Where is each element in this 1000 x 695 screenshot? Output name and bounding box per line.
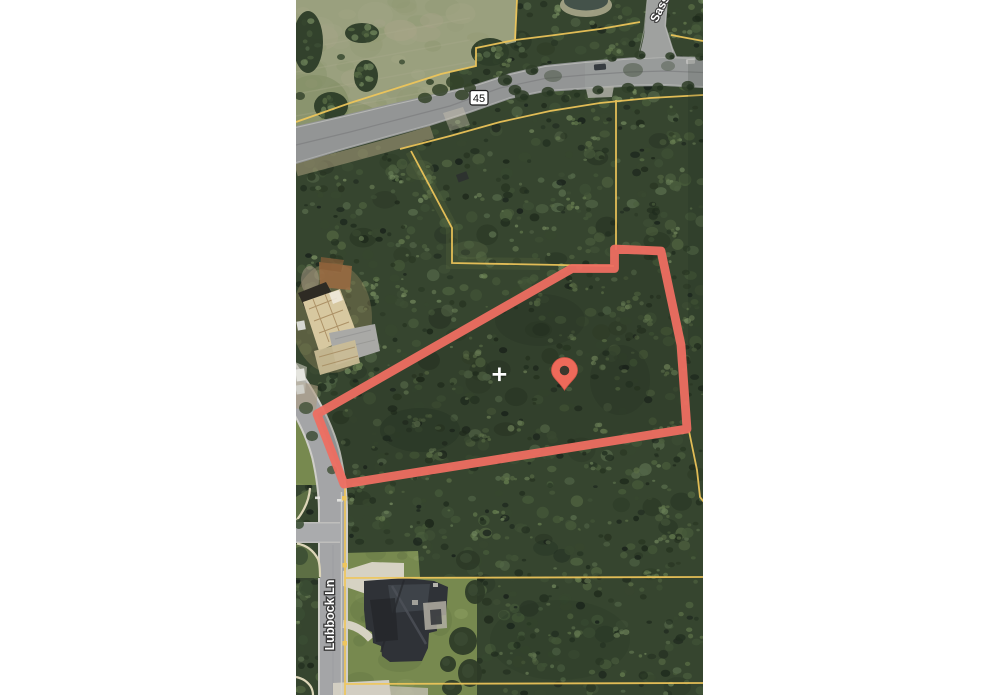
svg-text:45: 45: [473, 93, 485, 105]
svg-text:Lubbock Ln: Lubbock Ln: [323, 580, 337, 651]
